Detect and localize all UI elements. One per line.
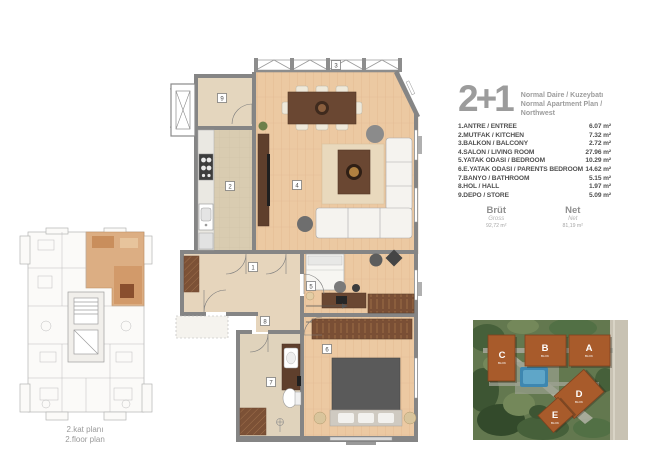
- building-c-sub: BLOK: [498, 361, 506, 365]
- key-plan-caption: 2.kat planı 2.floor plan: [25, 425, 145, 444]
- room-schedule-row: 1.ANTRE / ENTREE6.07 m²: [458, 123, 611, 132]
- armchair: [370, 254, 383, 267]
- net-title: Net: [535, 206, 612, 216]
- key-plan-core: [68, 292, 104, 362]
- building-b-label: B: [542, 343, 549, 354]
- area-totals: Brüt Gross 92,72 m² Net Net 81,19 m²: [458, 206, 611, 229]
- parents-wardrobe: [312, 319, 412, 339]
- room-schedule-row: 7.BANYO / BATHROOM5.15 m²: [458, 175, 611, 184]
- kitchen-counter: [198, 130, 214, 250]
- room-schedule-row: 5.YATAK ODASI / BEDROOM10.29 m²: [458, 157, 611, 166]
- label-bedroom: 5: [307, 282, 316, 291]
- net-subtitle: Net: [535, 216, 612, 223]
- shower-area: [240, 408, 266, 435]
- key-plan-caption-tr: 2.kat planı: [25, 425, 145, 435]
- building-d-sub: BLOK: [575, 400, 583, 404]
- key-floor-plan: [16, 226, 156, 424]
- room-schedule-row: 2.MUTFAK / KITCHEN7.32 m²: [458, 132, 611, 141]
- entree-closet: [184, 256, 199, 292]
- dining-table: [282, 86, 362, 130]
- building-c-label: C: [499, 350, 506, 361]
- label-bath: 7: [267, 378, 276, 387]
- bedroom-wardrobe: [368, 294, 414, 313]
- apartment-subtitle-en: Normal Apartment Plan / Northwest: [521, 100, 630, 118]
- entry-landing: [176, 316, 228, 338]
- tv-unit: [258, 122, 270, 227]
- apartment-header: 2+1 Normal Daire / Kuzeybatı Normal Apar…: [458, 84, 630, 118]
- room-schedule-row: 3.BALKON / BALCONY2.72 m²: [458, 140, 611, 149]
- building-e-label: E: [552, 410, 558, 421]
- stove-icon: [199, 154, 213, 180]
- label-hall: 8: [261, 317, 270, 326]
- room-schedule: 1.ANTRE / ENTREE6.07 m² 2.MUTFAK / KITCH…: [458, 123, 611, 200]
- label-kitchen: 2: [226, 182, 235, 191]
- building-a-label: A: [586, 343, 593, 354]
- gross-area: Brüt Gross 92,72 m²: [458, 206, 535, 229]
- room-schedule-row: 6.E.YATAK ODASI / PARENTS BEDROOM14.62 m…: [458, 166, 611, 175]
- building-b-sub: BLOK: [541, 354, 549, 358]
- net-area: Net Net 81,19 m²: [535, 206, 612, 229]
- gross-value: 92,72 m²: [458, 223, 535, 229]
- label-balcony: 3: [332, 61, 341, 70]
- plan-sheet-page: 2.kat planı 2.floor plan: [0, 0, 660, 466]
- sink-icon: [199, 204, 213, 230]
- round-rug: [366, 125, 384, 143]
- key-plan-caption-en: 2.floor plan: [25, 435, 145, 445]
- room-schedule-row: 4.SALON / LIVING ROOM27.96 m²: [458, 149, 611, 158]
- coffee-table-rug: [322, 144, 384, 204]
- site-plan-aerial: C BLOK B BLOK A BLOK D BLOK E BLOK: [473, 320, 628, 440]
- building-d-label: D: [576, 389, 583, 400]
- label-living: 4: [293, 181, 302, 190]
- room-schedule-row: 9.DEPO / STORE5.09 m²: [458, 192, 611, 201]
- label-store: 9: [218, 94, 227, 103]
- elevator-shaft: [170, 84, 195, 136]
- balcony-trellis: [254, 58, 402, 72]
- building-e-sub: BLOK: [551, 421, 559, 425]
- main-floor-plan: 3 9 2 4 1 8 5 6 7: [170, 58, 435, 445]
- label-entree: 1: [249, 263, 258, 272]
- apartment-subtitle-tr: Normal Daire / Kuzeybatı: [521, 91, 630, 100]
- apartment-subtitle: Normal Daire / Kuzeybatı Normal Apartmen…: [521, 84, 630, 118]
- gross-title: Brüt: [458, 206, 535, 216]
- apartment-type: 2+1: [458, 84, 512, 114]
- room-schedule-row: 8.HOL / HALL1.97 m²: [458, 183, 611, 192]
- building-a-sub: BLOK: [585, 354, 593, 358]
- gross-subtitle: Gross: [458, 216, 535, 223]
- label-parents: 6: [323, 345, 332, 354]
- net-value: 81,19 m²: [535, 223, 612, 229]
